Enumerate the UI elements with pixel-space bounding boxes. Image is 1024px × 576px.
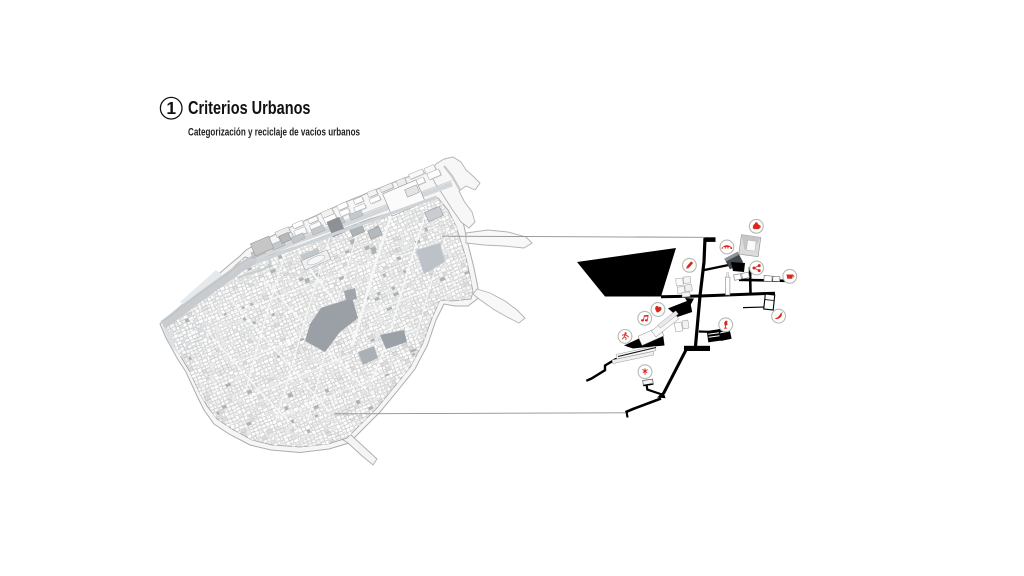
svg-text:Criterios Urbanos: Criterios Urbanos	[188, 98, 311, 118]
svg-text:Categorización y reciclaje de: Categorización y reciclaje de vacíos urb…	[188, 126, 360, 138]
svg-text:1: 1	[166, 98, 176, 118]
